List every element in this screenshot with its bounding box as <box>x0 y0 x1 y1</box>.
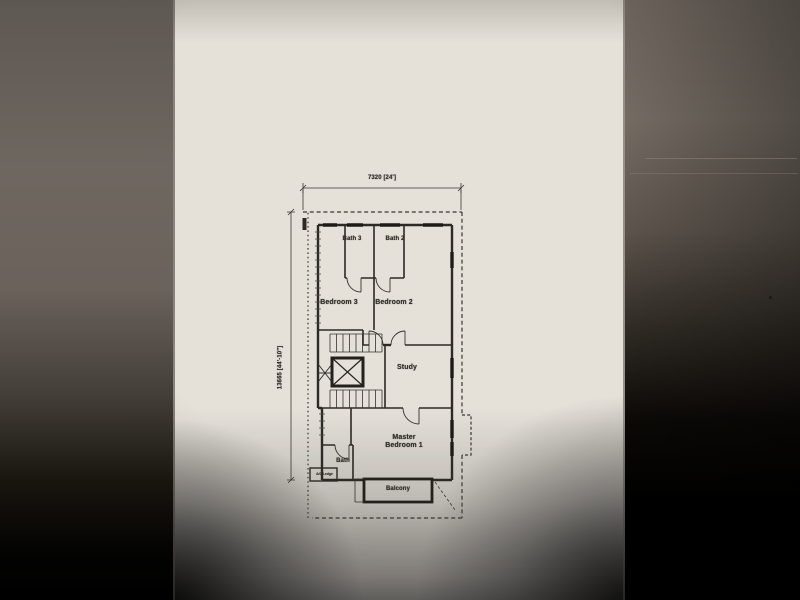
background-left-band <box>0 0 173 600</box>
floor-plan-drawing: 7320 [24'] 13665 [44'-10"] Bath 3 Bath 2… <box>285 168 480 530</box>
staircase-symbol <box>318 334 382 408</box>
floor-plan-linework <box>285 168 480 530</box>
background-right-band <box>625 0 800 600</box>
paper-crease <box>645 158 797 159</box>
dimension-top-label: 7320 [24'] <box>340 175 424 182</box>
paper-crease <box>630 173 798 174</box>
dimension-left-label: 13665 [44'-10"] <box>278 326 285 410</box>
room-label-bath2: Bath 2 <box>380 236 410 243</box>
room-label-master-bedroom: Master Bedroom 1 <box>378 434 430 450</box>
room-label-ac-ledge: A/C Ledge <box>316 473 331 477</box>
room-label-balcony: Balcony <box>373 486 423 493</box>
left-wall-hatching <box>315 232 325 435</box>
room-label-master-line1: Master <box>378 434 430 442</box>
room-label-bedroom3: Bedroom 3 <box>316 299 362 307</box>
window-marks <box>323 225 452 456</box>
floor-plan-photo: 7320 [24'] 13665 [44'-10"] Bath 3 Bath 2… <box>0 0 800 600</box>
room-label-master-line2: Bedroom 1 <box>378 442 430 450</box>
room-label-bedroom2: Bedroom 2 <box>371 299 417 307</box>
lift-shaft-symbol <box>332 358 363 386</box>
room-label-study: Study <box>387 364 427 372</box>
boundary-column <box>303 218 307 230</box>
room-label-bath: Bath <box>330 458 356 465</box>
room-label-bath3: Bath 3 <box>337 236 367 243</box>
paper-speck <box>769 296 772 299</box>
